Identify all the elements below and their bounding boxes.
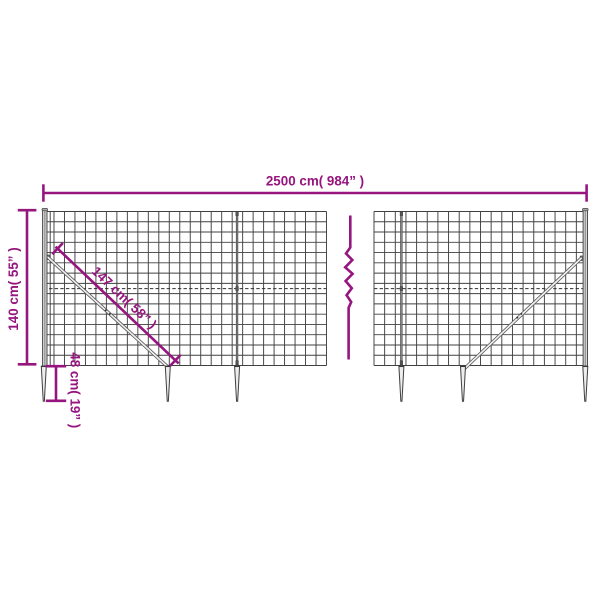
svg-text:2500 cm( 984” ): 2500 cm( 984” ): [266, 173, 364, 188]
svg-text:147 cm( 58” ): 147 cm( 58” ): [89, 264, 160, 332]
svg-text:48 cm( 19” ): 48 cm( 19” ): [68, 352, 83, 428]
svg-text:140 cm( 55” ): 140 cm( 55” ): [6, 247, 21, 330]
